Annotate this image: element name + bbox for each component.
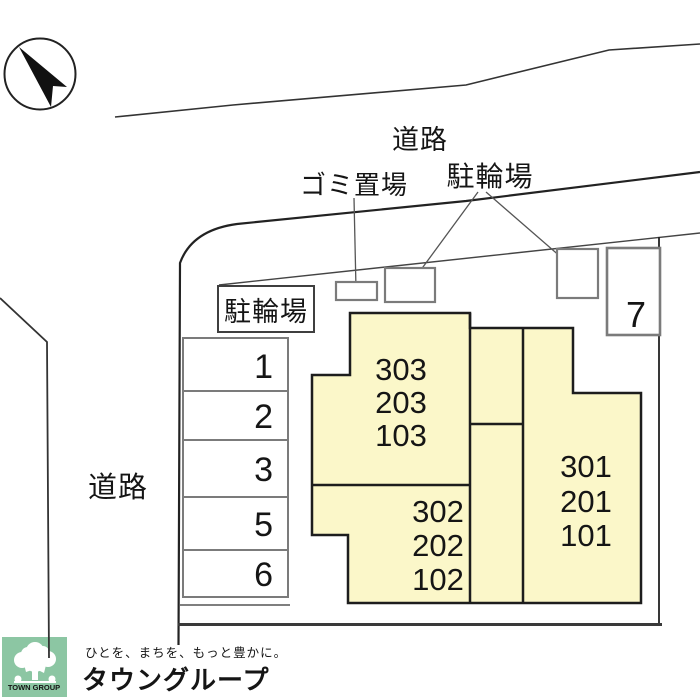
parking-number: 5 xyxy=(254,506,273,544)
parking-space-7-number: 7 xyxy=(626,294,646,335)
unit-number: 302 xyxy=(412,494,464,529)
parking-number: 6 xyxy=(254,556,273,594)
building: 303 203 103 302 202 102 301 201 101 xyxy=(312,313,641,603)
parking-space-7: 7 xyxy=(607,248,660,335)
unit-number: 203 xyxy=(375,385,427,420)
bicycle-parking-label: 駐輪場 xyxy=(446,161,533,192)
parking-numbers: 1 2 3 5 6 xyxy=(254,348,273,594)
unit-stack-middle: 302 202 102 xyxy=(412,494,464,597)
unit-number: 202 xyxy=(412,528,464,563)
bicycle-parking-box-label: 駐輪場 xyxy=(224,297,308,327)
site-plan: TOWN GROUP ひとを、まちを、もっと豊かに。 タウングループ 7 駐輪場… xyxy=(0,0,700,700)
town-group-logo: TOWN GROUP xyxy=(2,637,67,697)
parking-number: 2 xyxy=(254,398,273,436)
road-left-line xyxy=(0,298,49,658)
bicycle-spot-left-box xyxy=(385,268,435,302)
unit-number: 103 xyxy=(375,418,427,453)
garbage-area-box xyxy=(336,282,377,300)
unit-number: 102 xyxy=(412,562,464,597)
road-top-label: 道路 xyxy=(392,125,448,155)
bicycle-spot-right-box xyxy=(557,249,598,298)
road-top-outer-line xyxy=(115,44,700,117)
unit-stack-right: 301 201 101 xyxy=(560,449,612,553)
unit-number: 303 xyxy=(375,352,427,387)
footer-brand: タウングループ xyxy=(82,665,269,695)
bicycle-parking-label-box: 駐輪場 xyxy=(218,286,314,332)
unit-stack-left: 303 203 103 xyxy=(375,352,427,453)
site-plan-drawing: TOWN GROUP ひとを、まちを、もっと豊かに。 タウングループ 7 駐輪場… xyxy=(0,0,700,700)
garbage-area-label: ゴミ置場 xyxy=(300,170,408,200)
parking-number: 1 xyxy=(254,348,273,386)
logo-text: TOWN GROUP xyxy=(8,683,60,692)
north-arrow-icon xyxy=(5,39,76,110)
parking-number: 3 xyxy=(254,451,273,489)
road-left-label: 道路 xyxy=(88,471,148,504)
footer-tagline: ひとを、まちを、もっと豊かに。 xyxy=(85,646,287,660)
unit-number: 201 xyxy=(560,484,612,519)
unit-number: 301 xyxy=(560,449,612,484)
unit-number: 101 xyxy=(560,518,612,553)
